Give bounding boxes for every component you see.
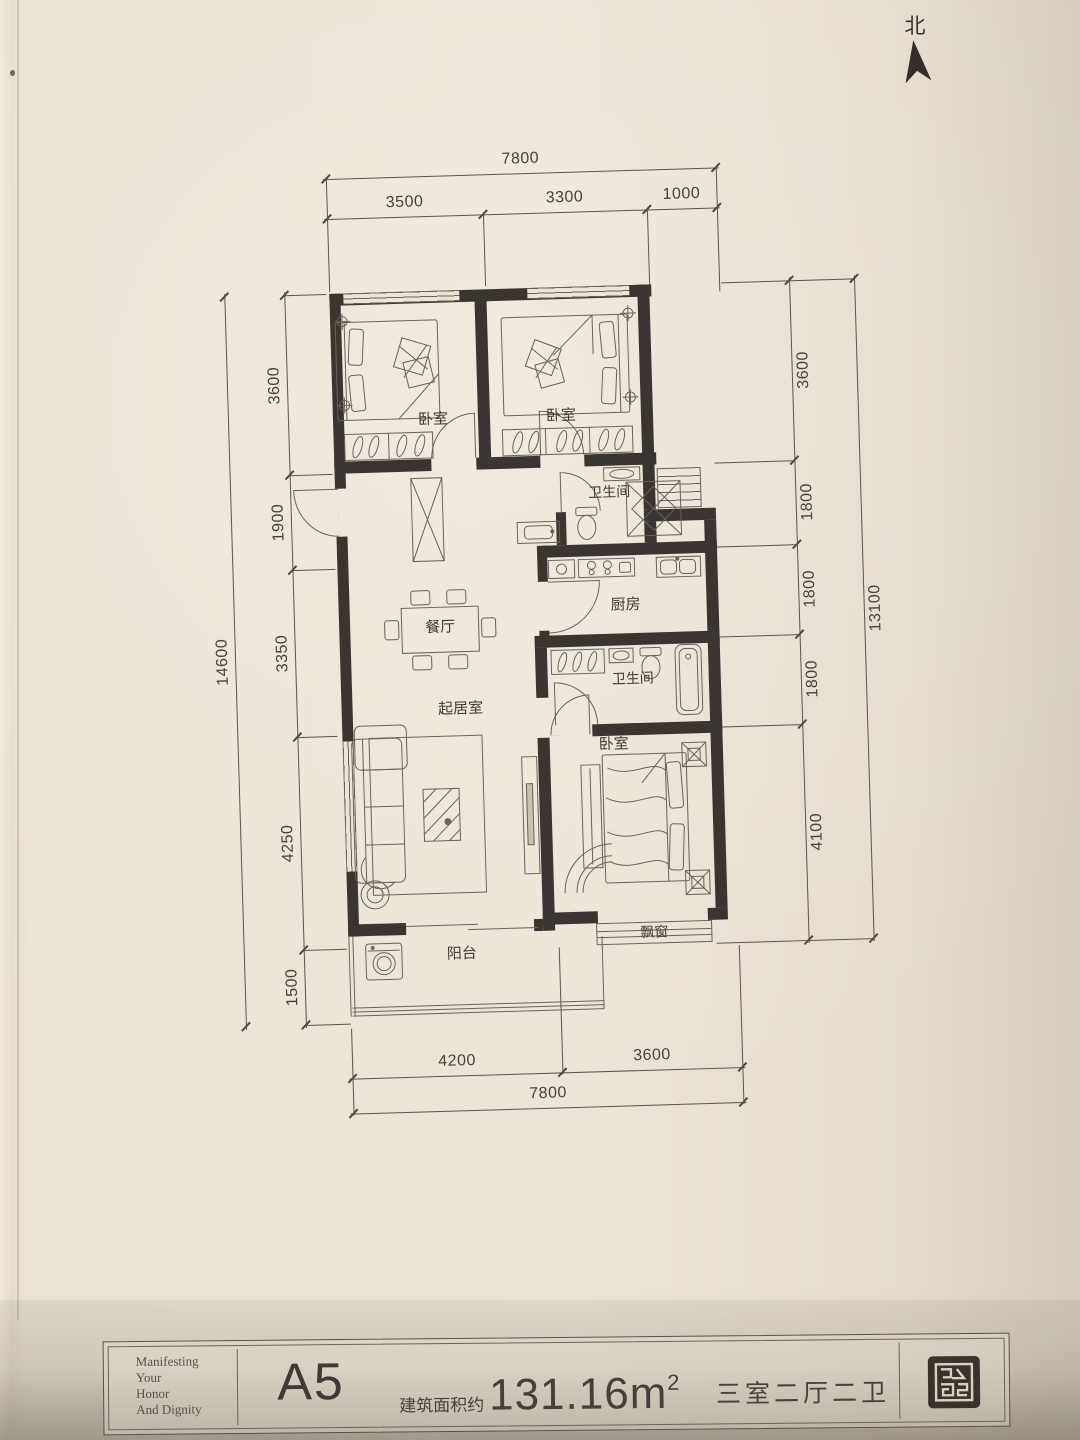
dim-label: 7800: [508, 1084, 588, 1104]
bedroom1-door-leaf: [474, 413, 476, 458]
chair-drawing: [448, 654, 468, 670]
page-edge: [17, 0, 19, 1320]
area-number: 131.16m: [489, 1369, 668, 1420]
room-label-living: 起居室: [425, 699, 496, 719]
room-label-kitchen: 厨房: [598, 595, 653, 615]
rug-arc-drawing: [562, 842, 616, 896]
wall-segment: [535, 648, 548, 698]
sliding-door: [406, 924, 478, 927]
wall-segment: [538, 738, 556, 931]
double-bed-drawing: [601, 752, 691, 884]
dim-label: 3600: [265, 345, 285, 425]
dim-label: 14600: [213, 622, 233, 702]
room-label-balcony: 阳台: [435, 945, 490, 965]
ceiling-light-icon: [334, 313, 350, 329]
dim-label: 1800: [803, 639, 823, 719]
room-label-bay-window: 飘窗: [624, 922, 685, 942]
dim-label: 4100: [807, 791, 827, 871]
closet-hanger-drawing: [550, 648, 606, 676]
balcony-railing: [353, 1008, 605, 1016]
wall-segment: [708, 907, 728, 920]
dim-label: 7800: [480, 149, 560, 169]
ceiling-light-icon: [336, 397, 352, 413]
room-label-master-bedroom: 卧室: [588, 735, 639, 754]
brand-slogan: Manifesting Your Honor And Dignity: [136, 1353, 202, 1418]
wall-segment: [584, 452, 656, 466]
dim-label: 3600: [794, 330, 814, 410]
dim-label: 3300: [524, 188, 604, 208]
chair-drawing: [446, 589, 466, 605]
chair-drawing: [384, 620, 400, 640]
toilet-drawing: [574, 506, 600, 542]
north-arrow-icon: [902, 40, 930, 84]
chair-drawing: [412, 655, 432, 671]
nightstand-drawing: [681, 741, 708, 768]
room-label-bathroom-lower: 卫生间: [603, 668, 664, 688]
wall-segment: [475, 300, 492, 457]
dim-label: 4250: [278, 803, 298, 883]
sink-drawing: [655, 555, 702, 578]
layout-type: 三室二厅二卫: [716, 1373, 890, 1411]
sliding-door: [468, 927, 538, 930]
chair-drawing: [410, 590, 430, 606]
wardrobe-drawing: [501, 425, 634, 457]
plant-drawing: [359, 878, 392, 911]
dim-label: 3350: [273, 613, 293, 693]
wall-segment: [476, 456, 540, 470]
sofa-drawing: [350, 724, 413, 898]
north-compass: 北: [880, 10, 950, 102]
north-label: 北: [880, 10, 950, 40]
washbasin-drawing: [603, 466, 641, 482]
unit-name: A5: [272, 1354, 351, 1411]
dim-label: 1800: [800, 549, 820, 629]
room-label-bedroom1: 卧室: [408, 410, 459, 429]
area-superscript: 2: [667, 1370, 680, 1395]
wall-segment: [543, 911, 598, 925]
double-bed-drawing: [500, 313, 631, 417]
bathtub-drawing: [674, 643, 704, 716]
wardrobe-drawing: [343, 431, 434, 462]
chair-drawing: [481, 617, 497, 637]
balcony-railing: [601, 936, 604, 1008]
title-block: Manifesting Your Honor And Dignity A5 建筑…: [103, 1333, 1011, 1436]
area-label: 建筑面积约: [399, 1391, 484, 1417]
ceiling-light-icon: [620, 305, 636, 321]
dust-speck: [10, 70, 15, 76]
dim-label: 1800: [797, 462, 817, 542]
slogan-line: Manifesting: [136, 1353, 202, 1370]
room-label-dining: 餐厅: [415, 618, 466, 637]
slogan-line: And Dignity: [136, 1401, 202, 1418]
dim-label: 1000: [641, 184, 721, 204]
wall-segment: [348, 923, 406, 937]
washbasin-drawing: [608, 647, 634, 664]
nightstand-drawing: [684, 869, 711, 896]
room-label-bathroom-upper: 卫生间: [579, 482, 640, 502]
brand-seal-icon: [928, 1356, 980, 1408]
coffee-table-drawing: [422, 787, 462, 842]
wall-segment: [537, 546, 548, 582]
dim-label: 1900: [269, 482, 289, 562]
dim-label: 3500: [364, 192, 444, 212]
closet-drawing: [410, 477, 446, 563]
wall-segment: [704, 520, 728, 908]
washing-machine-drawing: [365, 942, 404, 981]
kitchen-door-arc: [548, 580, 602, 634]
ceiling-light-icon: [622, 389, 638, 405]
dim-label: 13100: [866, 568, 886, 648]
dim-label: 1500: [283, 947, 303, 1027]
dim-label: 3600: [612, 1046, 692, 1066]
floor-plan: 7800 3500 3300 1000 4200 3600 7800 14600…: [329, 282, 740, 1023]
area-value: 131.16m2: [489, 1359, 681, 1420]
room-label-bedroom2: 卧室: [536, 406, 587, 425]
slogan-line: Honor: [136, 1385, 202, 1402]
kitchen-cabinet-drawing: [547, 559, 576, 580]
dim-label: 4200: [417, 1051, 497, 1071]
wall-segment: [534, 919, 543, 931]
washbasin-drawing: [516, 520, 561, 544]
balcony-railing: [352, 937, 355, 1017]
stove-drawing: [577, 557, 636, 579]
wall-segment: [592, 720, 722, 736]
slogan-line: Your: [136, 1369, 202, 1386]
